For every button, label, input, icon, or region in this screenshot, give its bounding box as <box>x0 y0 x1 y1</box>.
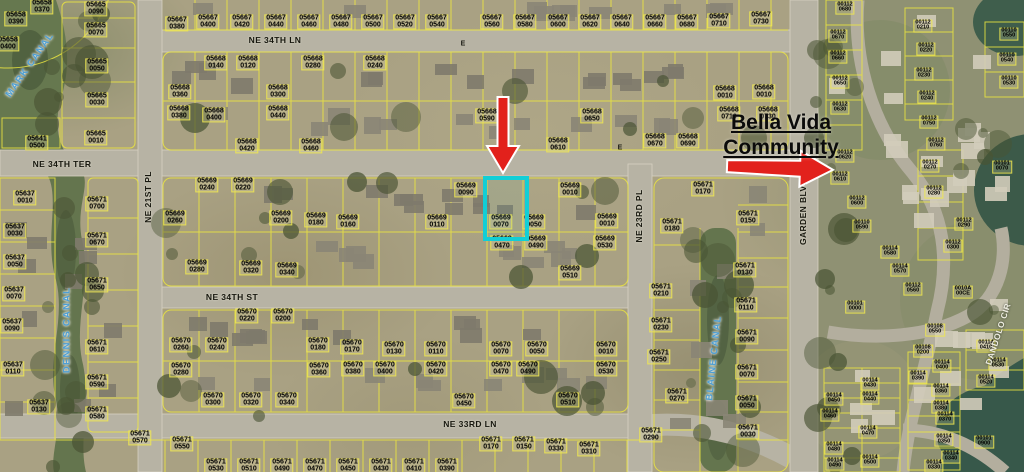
parcel-label: 056700490 <box>516 361 539 376</box>
parcel-label: 056700240 <box>205 337 228 352</box>
parcel-label: 056690010 <box>595 213 618 228</box>
parcel-label: 001120230 <box>914 68 933 81</box>
parcel-label: 056700530 <box>594 361 617 376</box>
parcel-label: 056710050 <box>735 395 758 410</box>
road-mark: E <box>461 41 466 48</box>
parcel-label: 056700070 <box>489 341 512 356</box>
street-label: NE 34TH TER <box>33 159 92 169</box>
parcel-label: 056710650 <box>85 277 108 292</box>
parcel-label: 056680140 <box>204 55 227 70</box>
parcel-label: 056690340 <box>275 262 298 277</box>
parcel-label: 056710700 <box>85 196 108 211</box>
parcel-label: 056710470 <box>303 458 326 472</box>
parcel-label: 056690530 <box>593 235 616 250</box>
parcel-label: 056680690 <box>676 133 699 148</box>
parcel-label: 056710450 <box>336 458 359 472</box>
parcel-label: 001120280 <box>924 186 943 199</box>
parcel-label: 056710090 <box>735 329 758 344</box>
parcel-label: 056710550 <box>170 436 193 451</box>
parcel-label: 056710330 <box>544 438 567 453</box>
parcel-label: 056670420 <box>230 14 253 29</box>
canal-label: BLAINE CANAL <box>704 315 724 401</box>
parcel-label: 056370130 <box>27 399 50 414</box>
parcel-label: 056670640 <box>610 14 633 29</box>
parcel-label: 056690220 <box>231 177 254 192</box>
community-line1: Bella Vida <box>731 110 831 135</box>
parcel-label: 001120680 <box>835 2 854 15</box>
parcel-label: 056670660 <box>643 14 666 29</box>
parcel-label: 056700340 <box>275 392 298 407</box>
parcel-label: 001100530 <box>999 76 1018 89</box>
parcel-label: 001140450 <box>824 393 843 406</box>
parcel-label: 001120760 <box>926 138 945 151</box>
parcel-label: 056670680 <box>675 14 698 29</box>
parcel-label: 056700280 <box>169 362 192 377</box>
parcel-label: 001140390 <box>908 371 927 384</box>
parcel-label: 056680240 <box>363 55 386 70</box>
parcel-label: 056680120 <box>236 55 259 70</box>
parcel-map[interactable]: 0565803700565803900565804000566500900566… <box>0 0 1024 472</box>
parcel-label: 056370010 <box>13 190 36 205</box>
parcel-label: 001120610 <box>830 172 849 185</box>
parcel-label: 056670580 <box>513 14 536 29</box>
parcel-label: 056690280 <box>185 259 208 274</box>
parcel-label: 056680280 <box>301 55 324 70</box>
parcel-label: 001010900 <box>974 436 994 449</box>
parcel-label: 056670440 <box>264 14 287 29</box>
parcel-label: 056670540 <box>425 14 448 29</box>
parcel-label: 056690510 <box>558 265 581 280</box>
parcel-label: 056580390 <box>4 11 27 26</box>
parcel-label: 056710030 <box>736 424 759 439</box>
parcel-label: 056710150 <box>512 436 535 451</box>
parcel-label: 001140500 <box>860 455 879 468</box>
parcel-label: 001120270 <box>920 160 939 173</box>
parcel-label: 056710530 <box>204 458 227 472</box>
parcel-label: 056370090 <box>0 318 23 333</box>
parcel-label: 056710390 <box>435 458 458 472</box>
street-label: NE 34TH LN <box>249 35 302 45</box>
parcel-label: 056700010 <box>594 341 617 356</box>
parcel-label: 056690160 <box>336 214 359 229</box>
community-annotation: Bella Vida Community <box>701 110 861 160</box>
parcel-label: 001100590 <box>852 220 871 233</box>
street-label: NE 23RD PL <box>634 189 644 242</box>
parcel-label: 056690110 <box>425 214 448 229</box>
road-mark: E <box>618 145 623 152</box>
parcel-label: 001100540 <box>997 53 1016 66</box>
parcel-label: 056680300 <box>266 84 289 99</box>
parcel-label: 001120650 <box>830 76 849 89</box>
parcel-label: 056410500 <box>25 135 48 150</box>
parcel-label: 056670400 <box>196 14 219 29</box>
parcel-label: 056700170 <box>340 339 363 354</box>
highlighted-parcel-box <box>483 176 529 241</box>
parcel-label: 001080550 <box>925 324 945 337</box>
parcel-label: 056650050 <box>85 58 108 73</box>
parcel-label: 056680440 <box>266 105 289 120</box>
parcel-label: 001140490 <box>825 458 844 471</box>
parcel-label: 001080200 <box>913 345 933 358</box>
parcel-label: 001140350 <box>934 434 953 447</box>
parcel-label: 056700320 <box>239 392 262 407</box>
parcel-label: 056680650 <box>580 108 603 123</box>
parcel-label: 001120290 <box>954 218 973 231</box>
parcel-label: 056700380 <box>341 361 364 376</box>
parcel-label: 056370050 <box>3 254 26 269</box>
street-label: DANDOLO CIR <box>983 302 1012 366</box>
parcel-label: 056710310 <box>577 441 600 456</box>
parcel-label: 056710170 <box>691 181 714 196</box>
parcel-label: 056710410 <box>402 458 425 472</box>
parcel-label: 001120560 <box>903 283 922 296</box>
parcel-label: 056700260 <box>169 337 192 352</box>
parcel-label: 001140330 <box>924 460 943 472</box>
parcel-label: 0010A00CE <box>953 286 973 299</box>
parcel-label: 056680400 <box>202 107 225 122</box>
parcel-label: 001140370 <box>935 412 954 425</box>
parcel-label: 056710110 <box>734 297 757 312</box>
parcel-label: 001140570 <box>890 264 909 277</box>
parcel-label: 056700050 <box>525 341 548 356</box>
parcel-label: 001120300 <box>943 240 962 253</box>
parcel-label: 056710150 <box>736 210 759 225</box>
parcel-label: 056700110 <box>424 341 447 356</box>
parcel-label: 001140340 <box>941 451 960 464</box>
parcel-label: 001120670 <box>828 30 847 43</box>
parcel-label: 056680590 <box>475 108 498 123</box>
parcel-label: 056690010 <box>558 182 581 197</box>
parcel-label: 056680460 <box>299 138 322 153</box>
parcel-label: 001140520 <box>976 375 995 388</box>
parcel-label: 056670710 <box>707 13 730 28</box>
parcel-label: 056680670 <box>643 133 666 148</box>
community-line2: Community <box>723 135 839 160</box>
parcel-label: 056650030 <box>85 92 108 107</box>
parcel-label: 056670500 <box>361 14 384 29</box>
parcel-label: 056670480 <box>329 14 352 29</box>
canal-label: DENNIS CANAL <box>62 287 73 373</box>
parcel-label: 056680610 <box>546 137 569 152</box>
parcel-label: 056710210 <box>649 283 672 298</box>
parcel-label: 001140580 <box>880 246 899 259</box>
parcel-label: 001140400 <box>932 360 951 373</box>
parcel-label: 001010000 <box>845 301 865 314</box>
parcel-label: 056690260 <box>163 210 186 225</box>
parcel-label: 001120600 <box>847 196 866 209</box>
parcel-label: 001140470 <box>858 426 877 439</box>
parcel-label: 056710180 <box>660 218 683 233</box>
parcel-label: 056680420 <box>235 138 258 153</box>
parcel-label: 056670380 <box>165 16 188 31</box>
parcel-label: 056670560 <box>480 14 503 29</box>
parcel-label: 056700510 <box>556 392 579 407</box>
parcel-label: 001140460 <box>820 409 839 422</box>
parcel-label: 001140480 <box>824 442 843 455</box>
parcel-label: 056700220 <box>235 308 258 323</box>
parcel-label: 056710170 <box>479 436 502 451</box>
parcel-label: 001140440 <box>860 392 879 405</box>
parcel-label: 056580400 <box>0 36 20 51</box>
parcel-label: 056690240 <box>195 177 218 192</box>
parcel-label: 056650010 <box>84 130 107 145</box>
parcel-label: 056670460 <box>297 14 320 29</box>
parcel-label: 056710610 <box>85 339 108 354</box>
parcel-label: 056700420 <box>424 361 447 376</box>
parcel-label: 056680360 <box>168 84 191 99</box>
parcel-label: 056580370 <box>30 0 53 15</box>
parcel-label: 056370110 <box>1 361 24 376</box>
parcel-label: 056370030 <box>3 223 26 238</box>
parcel-label: 056680380 <box>167 105 190 120</box>
parcel-label: 056650090 <box>84 1 107 16</box>
parcel-label: 001120660 <box>828 51 847 64</box>
parcel-label: 056670730 <box>749 11 772 26</box>
parcel-label: 056700130 <box>382 341 405 356</box>
parcel-label: 001120220 <box>916 43 935 56</box>
parcel-label: 056690200 <box>269 210 292 225</box>
parcel-label: 056710670 <box>85 232 108 247</box>
parcel-label: 056680010 <box>752 84 775 99</box>
parcel-label: 056710590 <box>85 374 108 389</box>
parcel-label: 056710230 <box>649 317 672 332</box>
parcel-label: 056710430 <box>369 458 392 472</box>
parcel-label: 056710490 <box>270 458 293 472</box>
parcel-label: 056700180 <box>306 337 329 352</box>
parcel-label: 001120240 <box>917 91 936 104</box>
parcel-label: 001120210 <box>913 20 932 33</box>
parcel-label: 056650070 <box>84 22 107 37</box>
parcel-label: 056710510 <box>237 458 260 472</box>
parcel-label: 056680010 <box>713 85 736 100</box>
street-label: GARDEN BLVD <box>798 179 808 245</box>
parcel-label: 001140430 <box>860 378 879 391</box>
parcel-label: 056700400 <box>373 361 396 376</box>
parcel-label: 056670520 <box>393 14 416 29</box>
parcel-label: 056710250 <box>647 349 670 364</box>
parcel-label: 056710270 <box>665 388 688 403</box>
parcel-label: 001120750 <box>919 116 938 129</box>
street-label: NE 33RD LN <box>443 419 497 429</box>
parcel-label: 056710570 <box>128 430 151 445</box>
parcel-label: 056690320 <box>239 260 262 275</box>
parcel-label: 001100550 <box>999 28 1018 41</box>
street-label: NE 21ST PL <box>143 171 153 223</box>
parcel-label: 056710580 <box>85 406 108 421</box>
street-label: NE 34TH ST <box>206 292 258 302</box>
parcel-label: 056700300 <box>201 392 224 407</box>
parcel-label: 056700200 <box>271 308 294 323</box>
parcel-label: 056700470 <box>489 361 512 376</box>
parcel-label: 001140360 <box>931 384 950 397</box>
parcel-label: 001010070 <box>992 161 1012 174</box>
parcel-label: 056690090 <box>454 182 477 197</box>
parcel-label: 056370070 <box>2 286 25 301</box>
parcel-label: 056700360 <box>307 362 330 377</box>
parcel-label: 056710130 <box>733 262 756 277</box>
parcel-label: 056690180 <box>304 212 327 227</box>
parcel-label: 056670600 <box>546 14 569 29</box>
parcel-label: 056670620 <box>578 14 601 29</box>
parcel-label: 056710070 <box>735 364 758 379</box>
parcel-label: 056710290 <box>639 427 662 442</box>
parcel-label: 056700450 <box>452 393 475 408</box>
